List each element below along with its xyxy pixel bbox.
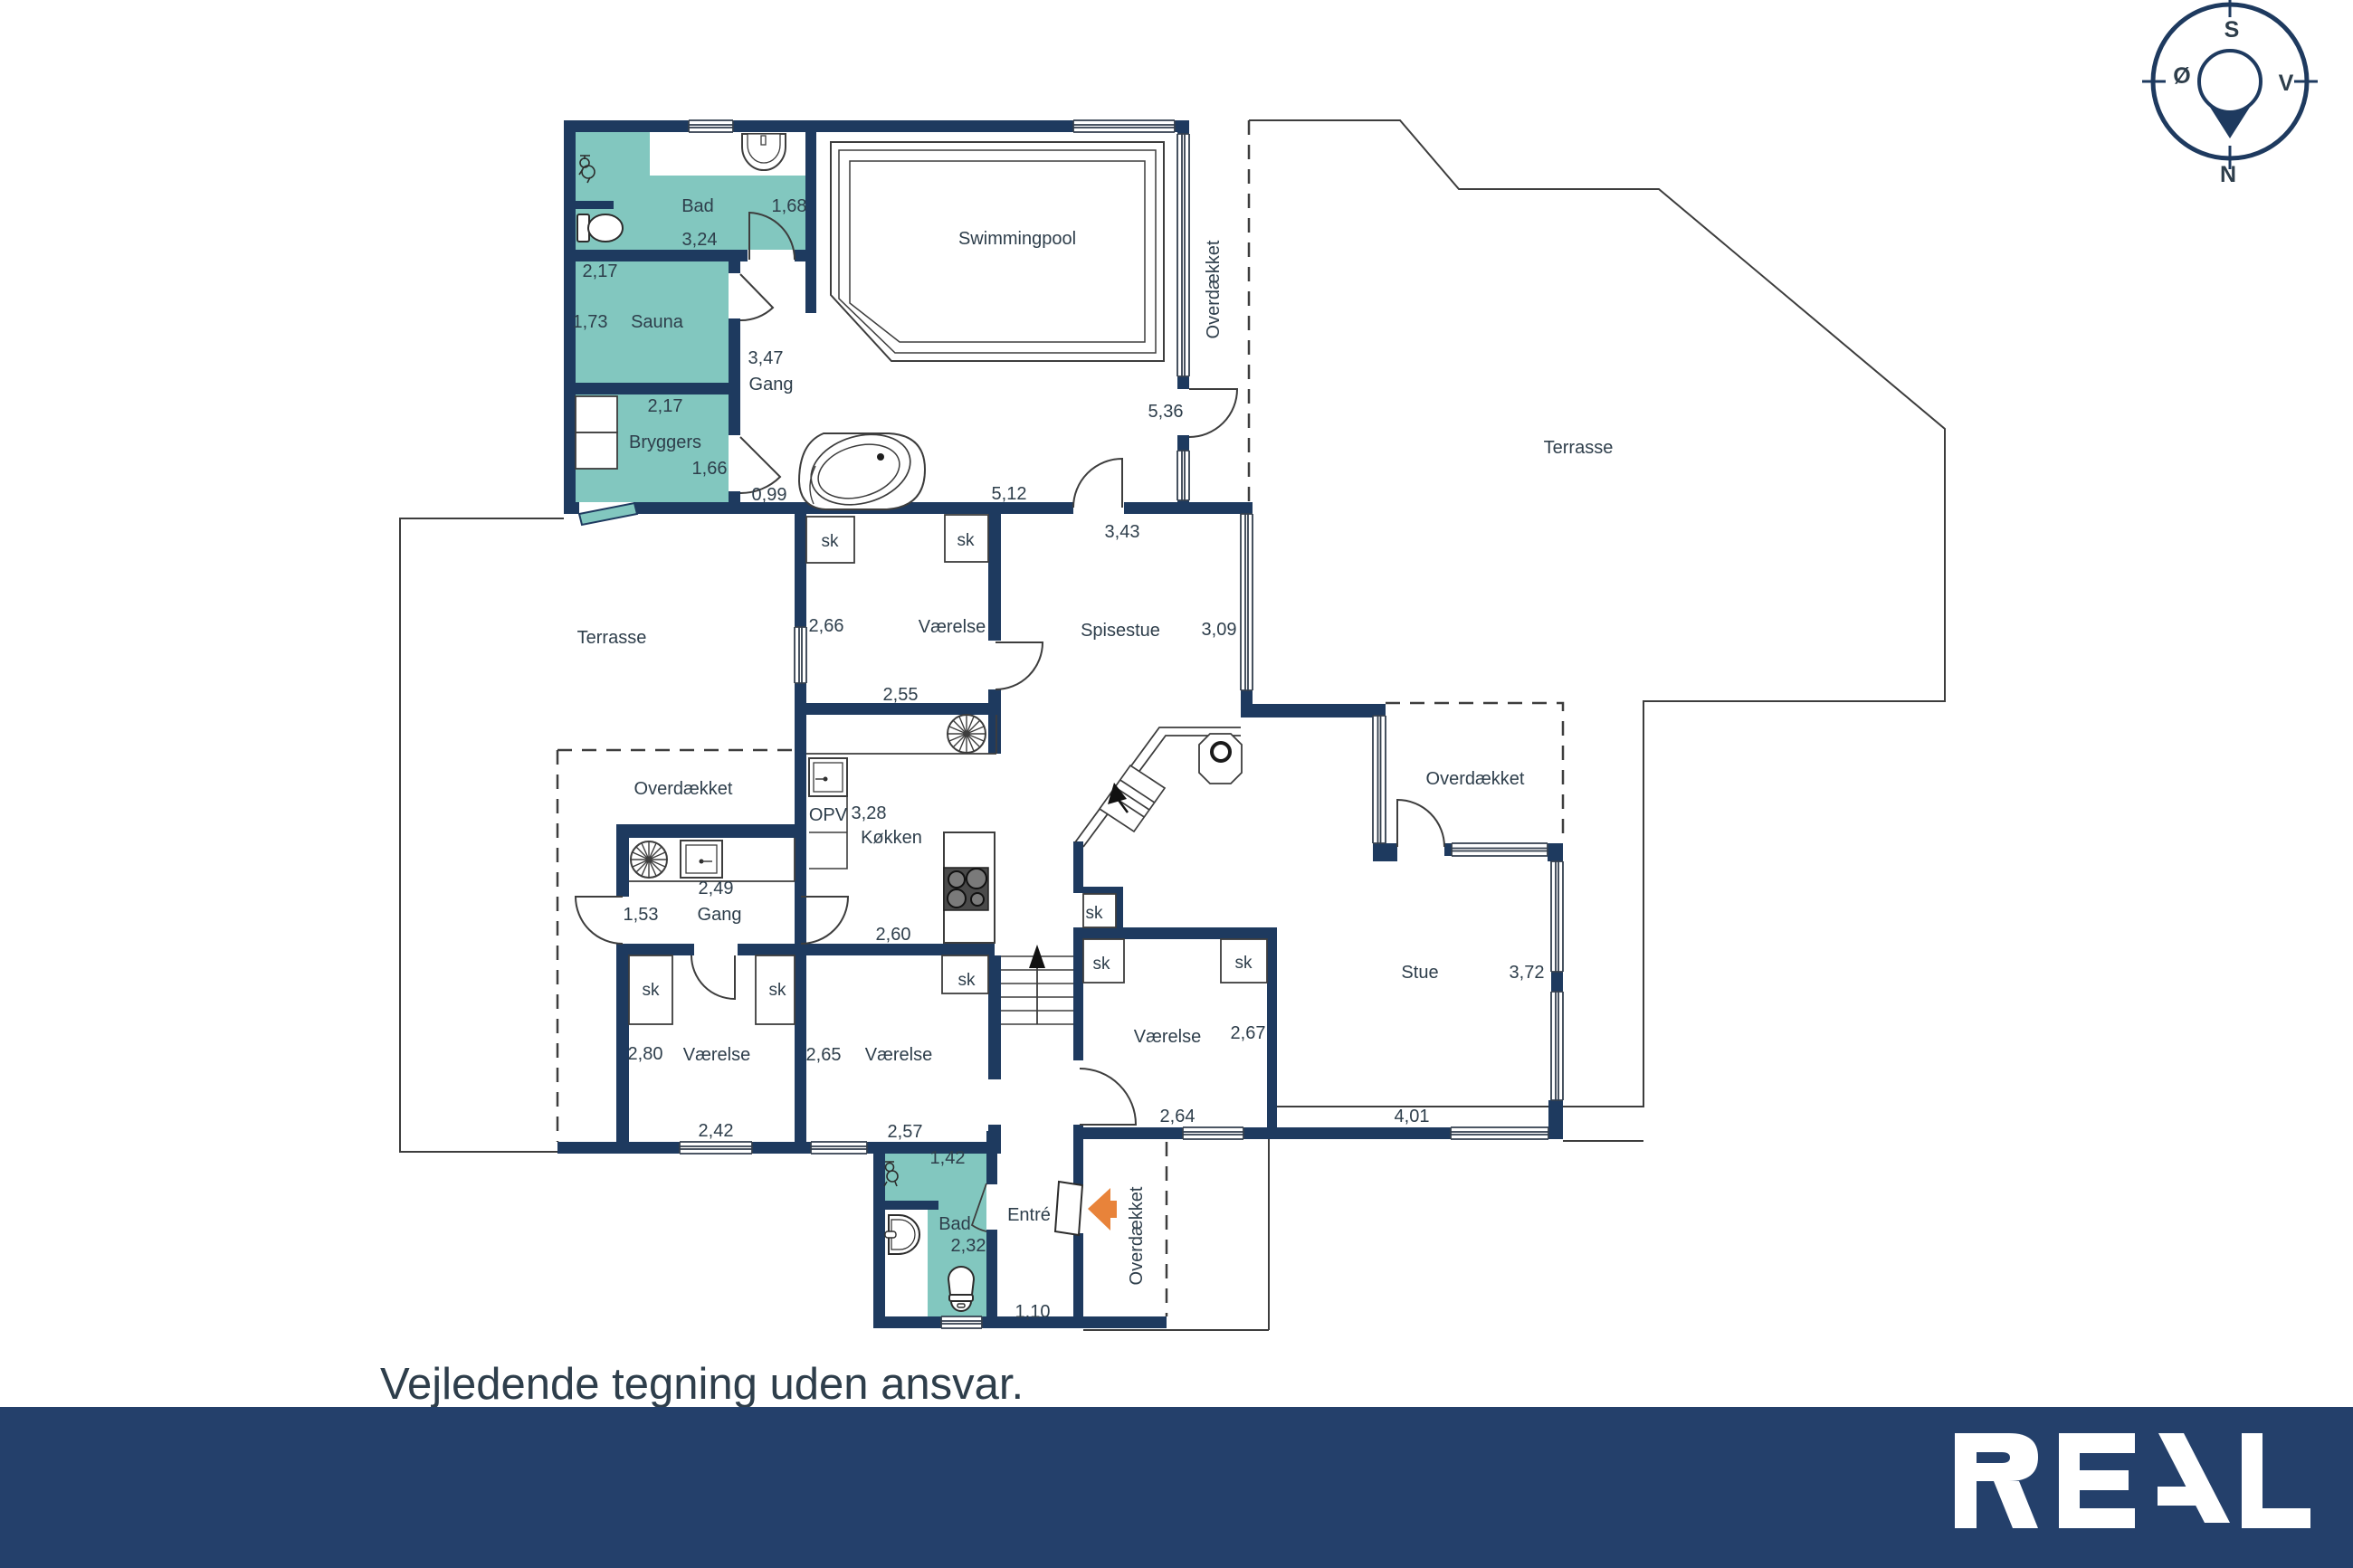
svg-text:3,28: 3,28 [852,803,887,823]
svg-text:2,55: 2,55 [883,685,919,705]
svg-text:3,43: 3,43 [1105,522,1140,542]
svg-text:Overdækket: Overdækket [1204,240,1224,338]
svg-text:N: N [2220,162,2236,187]
svg-text:V: V [2279,71,2294,96]
svg-text:Bad: Bad [681,196,714,216]
svg-text:sk: sk [1093,955,1111,974]
svg-text:Bad: Bad [938,1214,971,1234]
svg-text:Sauna: Sauna [631,312,684,332]
svg-text:2,64: 2,64 [1160,1107,1196,1126]
svg-text:3,72: 3,72 [1510,963,1545,983]
svg-text:3,09: 3,09 [1202,620,1237,640]
svg-text:Overdækket: Overdækket [1127,1186,1147,1285]
svg-text:2,42: 2,42 [699,1121,734,1141]
svg-text:Ø: Ø [2173,63,2190,89]
svg-text:Terrasse: Terrasse [1544,438,1614,458]
svg-text:Stue: Stue [1401,963,1438,983]
svg-text:Entré: Entré [1007,1205,1051,1225]
svg-text:2,80: 2,80 [628,1044,663,1064]
svg-text:1,68: 1,68 [772,196,807,216]
svg-text:1,73: 1,73 [573,312,608,332]
svg-text:Værelse: Værelse [1134,1027,1201,1047]
svg-text:2,32: 2,32 [951,1236,986,1256]
svg-text:Overdækket: Overdækket [634,779,733,799]
svg-text:1,10: 1,10 [1015,1302,1051,1322]
svg-text:sk: sk [1086,904,1104,923]
svg-text:2,65: 2,65 [806,1045,842,1065]
svg-text:2,17: 2,17 [648,396,683,416]
svg-text:1,66: 1,66 [692,459,728,479]
svg-text:4,01: 4,01 [1395,1107,1430,1126]
svg-text:Gang: Gang [749,375,794,394]
svg-text:2,60: 2,60 [876,925,911,945]
svg-text:sk: sk [957,531,976,550]
svg-text:5,12: 5,12 [992,484,1027,504]
svg-text:Overdækket: Overdækket [1426,769,1525,789]
svg-text:Terrasse: Terrasse [577,628,647,648]
svg-text:Spisestue: Spisestue [1081,621,1160,641]
svg-text:sk: sk [1235,954,1253,973]
svg-text:2,66: 2,66 [809,616,844,636]
svg-text:Bryggers: Bryggers [629,432,701,452]
svg-text:5,36: 5,36 [1148,402,1184,422]
svg-text:Vejledende tegning uden ansvar: Vejledende tegning uden ansvar. [380,1360,1024,1409]
svg-text:2,49: 2,49 [699,879,734,898]
svg-text:2,17: 2,17 [583,261,618,281]
svg-text:Værelse: Værelse [865,1045,932,1065]
svg-text:1,42: 1,42 [930,1148,966,1168]
svg-text:Værelse: Værelse [919,617,986,637]
svg-text:3,24: 3,24 [682,230,718,250]
svg-text:3,47: 3,47 [748,348,784,368]
svg-text:OPV: OPV [809,805,848,825]
svg-text:Gang: Gang [698,905,742,925]
svg-text:1,53: 1,53 [624,905,659,925]
svg-text:sk: sk [769,981,787,1000]
svg-text:0,99: 0,99 [752,485,787,505]
svg-text:sk: sk [822,532,840,551]
svg-text:sk: sk [958,971,976,990]
svg-text:Værelse: Værelse [683,1045,750,1065]
svg-text:S: S [2224,17,2240,43]
svg-text:2,67: 2,67 [1231,1023,1266,1043]
svg-text:Køkken: Køkken [861,828,922,848]
svg-text:Swimmingpool: Swimmingpool [958,229,1076,249]
svg-text:sk: sk [643,981,661,1000]
svg-text:2,57: 2,57 [888,1122,923,1142]
